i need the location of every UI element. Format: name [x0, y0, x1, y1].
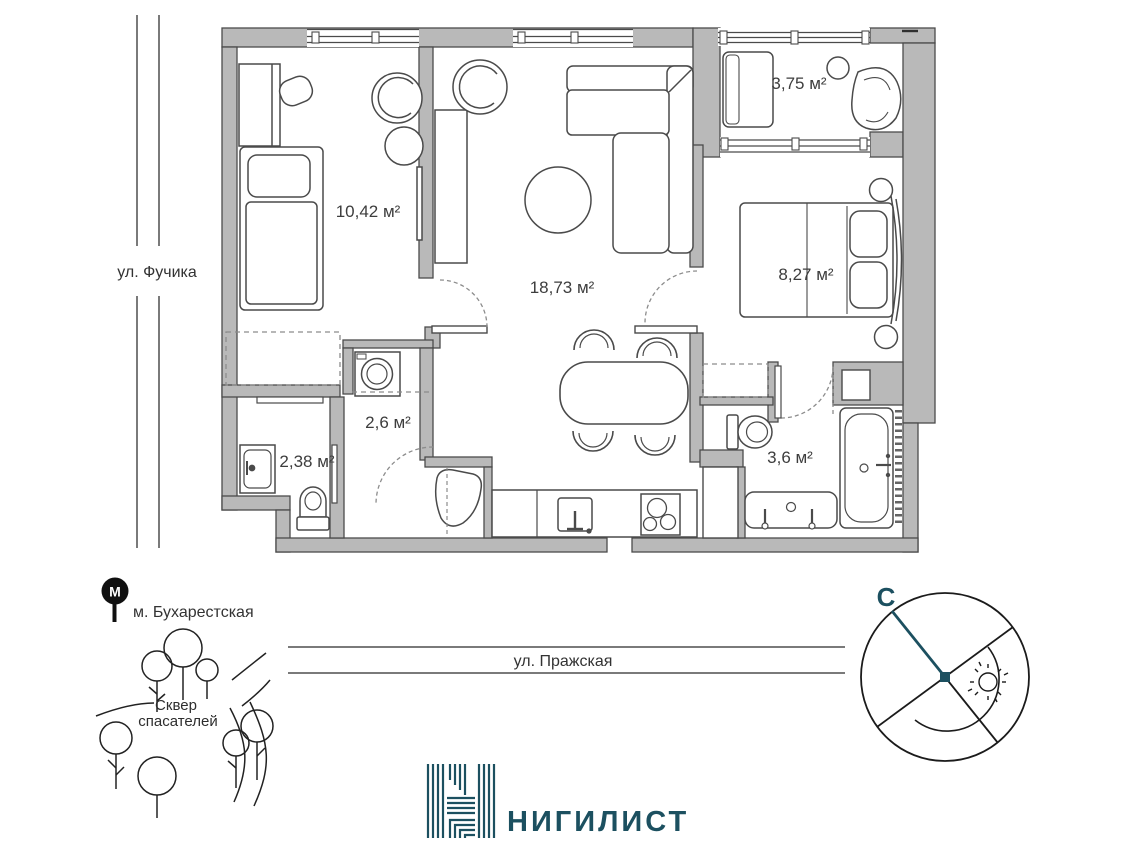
door-arc-bathroom: [781, 366, 833, 418]
bathroom-door-leaf: [775, 366, 781, 418]
street-left-lines: [137, 15, 159, 548]
area-label-wc-guest: 2,38 м²: [279, 452, 334, 471]
floor-plan-drawing: ул. Фучика: [0, 0, 1124, 852]
area-label-bathroom: 3,6 м²: [767, 448, 813, 467]
metro-icon: М: [102, 578, 129, 623]
area-label-balcony: 3,75 м²: [771, 74, 826, 93]
tree-icon: [100, 722, 132, 789]
metro-letter: М: [109, 584, 121, 600]
furniture-room: [239, 64, 423, 310]
furniture-bathroom: [727, 408, 899, 529]
entry-door: [436, 467, 482, 536]
area-label-bedroom: 8,27 м²: [778, 265, 833, 284]
compass-icon: С: [861, 582, 1029, 761]
tree-icon: [138, 757, 176, 818]
metro-label: м. Бухарестская: [133, 604, 254, 621]
park-name-line2: спасателей: [138, 713, 218, 730]
logo-text: НИГИЛИСТ: [507, 806, 689, 838]
compass-north-label: С: [877, 582, 896, 612]
area-label-room: 10,42 м²: [336, 202, 401, 221]
area-label-living: 18,73 м²: [530, 278, 595, 297]
floor-plan-page: ул. Фучика: [0, 0, 1124, 852]
furniture-living: [435, 60, 693, 263]
furniture-dining: [560, 330, 688, 455]
tree-icon: [241, 710, 273, 780]
street-left-label: ул. Фучика: [117, 264, 197, 281]
area-label-hallway: 2,6 м²: [365, 413, 411, 432]
north-needle: [892, 611, 945, 677]
logo-mark-icon: [428, 764, 494, 838]
sun-icon: [968, 662, 1008, 702]
door-arc-bedroom: [645, 271, 697, 323]
tree-icon: [196, 659, 218, 699]
park-name-line1: Сквер: [155, 697, 197, 714]
furniture-hallway: [355, 352, 400, 396]
street-bottom-label: ул. Пражская: [514, 653, 613, 670]
furniture-kitchen: [492, 490, 697, 537]
tree-icon: [164, 629, 202, 700]
furniture-bedroom: [740, 179, 902, 349]
door-arc-room: [440, 280, 487, 327]
